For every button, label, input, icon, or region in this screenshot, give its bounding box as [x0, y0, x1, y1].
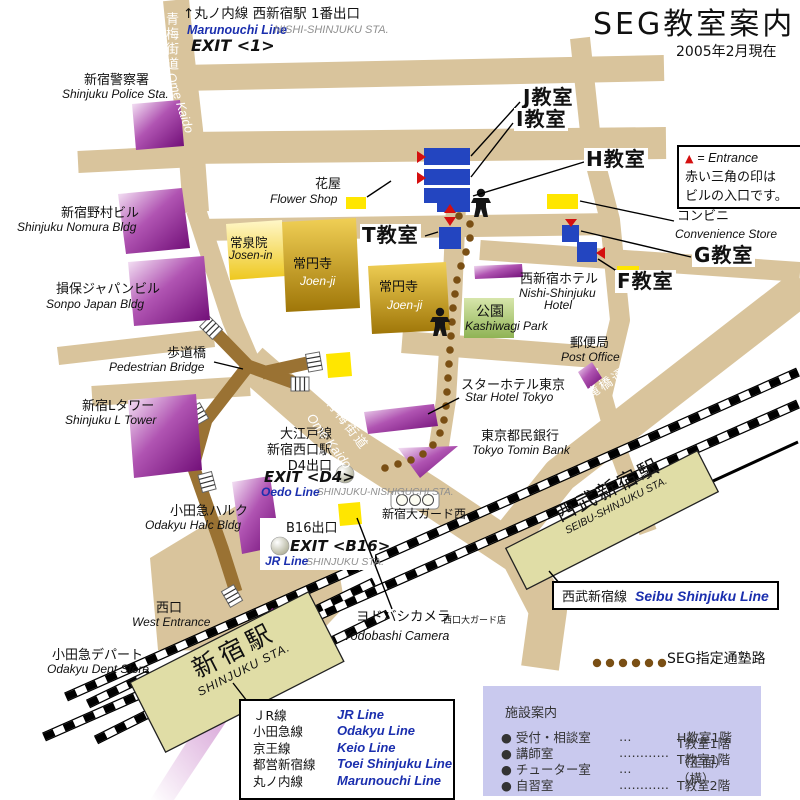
bridge-en: Pedestrian Bridge — [109, 361, 204, 375]
classroom-f-building — [577, 242, 597, 262]
park-en: Kashiwagi Park — [465, 320, 548, 334]
flower-en: Flower Shop — [270, 193, 337, 207]
line-en: JR Line — [337, 707, 384, 722]
seg-map: SEG教室案内 2005年2月現在 ↑丸ノ内線 西新宿駅 1番出口 Maruno… — [0, 0, 800, 800]
classroom-h-building — [424, 188, 470, 212]
line-row: 丸ノ内線 Marunouchi Line — [253, 772, 453, 789]
classroom-g-label: G教室 — [692, 244, 755, 267]
classroom-g-building — [562, 225, 579, 242]
b16-jp: B16出口 — [286, 522, 337, 537]
oedo-l2: 新宿西口駅 — [246, 443, 332, 459]
nishi-shinjuku-sta-label: NISHI-SHINJUKU STA. — [274, 24, 389, 37]
seibu-line-box: 西武新宿線 Seibu Shinjuku Line — [552, 581, 779, 610]
joenji-en: Joen-ji — [300, 275, 335, 289]
convenience-store-marker — [547, 194, 578, 209]
route-legend-dots — [593, 659, 666, 667]
road-marker-yellow — [326, 352, 352, 378]
park-jp: 公園 — [476, 304, 504, 320]
facility-leader: ………… — [619, 745, 677, 760]
yodobashi-branch: 西口大ガード店 — [443, 616, 506, 626]
line-en: Odakyu Line — [337, 723, 415, 738]
joenji-jp: 常円寺 — [293, 258, 332, 273]
entrance-legend-box: ▲ = Entrance 赤い三角の印は ビルの入口です。 — [677, 145, 800, 209]
classroom-i-label: I教室 — [514, 108, 568, 131]
joenji2-jp: 常円寺 — [379, 281, 418, 296]
classroom-j-label: J教室 — [521, 86, 575, 109]
exit-b16-label: EXIT <B16> — [290, 538, 390, 555]
b16-sta-label: SHINJUKU STA. — [306, 556, 384, 568]
line-row: 小田急線 Odakyu Line — [253, 723, 453, 740]
facility-leader: … — [619, 729, 677, 744]
exit-1-label: EXIT <1> — [191, 37, 275, 55]
sonpo-jp: 損保ジャパンビル — [56, 283, 160, 298]
entrance-l2: 赤い三角の印は — [685, 166, 797, 185]
line-en: Toei Shinjuku Line — [337, 756, 452, 771]
facility-guide-box: 施設案内 ● 受付・相談室 … H教室1階 ● 講師室 ………… T教室1階（正… — [483, 686, 761, 796]
entrance-l3: ビルの入口です。 — [685, 185, 797, 204]
star-hotel-building — [364, 404, 438, 434]
entrance-eq: = Entrance — [697, 151, 758, 165]
west-entrance-en: West Entrance — [132, 616, 210, 630]
facility-location: T教室2階 — [677, 775, 749, 794]
conbini-en: Convenience Store — [675, 228, 777, 242]
classroom-j-building — [424, 148, 470, 165]
ogado-label: 新宿大ガード西 — [382, 508, 466, 522]
classroom-t-building — [439, 227, 461, 249]
classroom-f-label: F教室 — [615, 270, 676, 293]
police-en: Shinjuku Police Sta. — [62, 88, 169, 102]
yodobashi-en: Yodobashi Camera — [343, 629, 449, 643]
oedo-sta-label: SHINJUKU-NISHIGUCHI STA. — [317, 487, 454, 499]
marunouchi-exit-jp: ↑丸ノ内線 西新宿駅 1番出口 — [183, 7, 360, 23]
b16-line-label: JR Line — [265, 555, 308, 569]
exit-b16-sphere — [271, 537, 289, 555]
bank-en: Tokyo Tomin Bank — [472, 444, 570, 458]
route-legend-label: SEG指定通塾路 — [667, 651, 766, 667]
classroom-i-building — [424, 169, 470, 185]
classroom-t-label: T教室 — [360, 224, 421, 247]
post-en: Post Office — [561, 351, 620, 365]
entrance-triangle-icon: ▲ — [685, 152, 693, 165]
josenin-jp: 常泉院 — [230, 236, 268, 250]
line-jp: 丸ノ内線 — [253, 771, 337, 790]
facility-title: 施設案内 — [505, 702, 557, 721]
nishi-hotel-en2: Hotel — [544, 299, 572, 313]
flower-jp: 花屋 — [315, 178, 341, 193]
josenin-en: Josen-in — [229, 250, 272, 263]
odakyu-dept-en: Odakyu Dept Store — [47, 663, 149, 677]
line-row: ＪR線 JR Line — [253, 706, 453, 723]
page-title: SEG教室案内 — [593, 8, 795, 43]
oedo-line-label: Oedo Line — [261, 486, 320, 500]
halc-en: Odakyu Halc Bldg — [145, 519, 241, 533]
facility-leader: ………… — [619, 777, 677, 792]
railway-lines-box: ＪR線 JR Line 小田急線 Odakyu Line 京王線 Keio Li… — [239, 699, 455, 800]
line-en: Keio Line — [337, 740, 396, 755]
nomura-en: Shinjuku Nomura Bldg — [17, 221, 136, 235]
classroom-h-label: H教室 — [584, 148, 648, 171]
map-date: 2005年2月現在 — [676, 44, 777, 60]
line-en: Marunouchi Line — [337, 773, 441, 788]
line-row: 京王線 Keio Line — [253, 739, 453, 756]
seibu-line-en: Seibu Shinjuku Line — [635, 588, 769, 604]
facility-name: ● 自習室 — [501, 775, 619, 794]
conbini-jp: コンビニ — [677, 210, 729, 225]
ome-kaido-jp-top: 青梅街道 — [162, 12, 177, 72]
star-hotel-en: Star Hotel Tokyo — [465, 391, 553, 405]
yodobashi-jp: ヨドバシカメラ — [356, 610, 451, 626]
joenji2-en: Joen-ji — [387, 299, 422, 313]
ltower-en: Shinjuku L Tower — [65, 414, 156, 428]
seibu-line-jp: 西武新宿線 — [562, 586, 627, 605]
nishi-hotel-building — [474, 264, 523, 279]
flower-shop-marker — [346, 197, 366, 209]
line-row: 都営新宿線 Toei Shinjuku Line — [253, 756, 453, 773]
facility-row: ● 自習室 ………… T教室2階 — [501, 776, 749, 792]
facility-leader: … — [619, 761, 677, 776]
sonpo-en: Sonpo Japan Bldg — [46, 298, 144, 312]
